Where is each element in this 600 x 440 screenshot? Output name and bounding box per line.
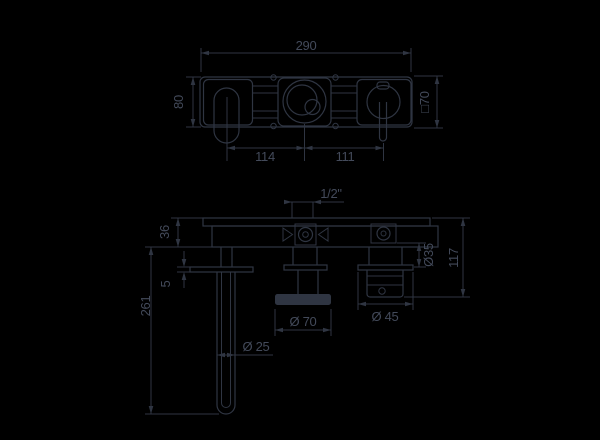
dim-label-mixer-knob-diameter: Ø 70 — [290, 314, 317, 329]
mixer-knob-section — [275, 247, 331, 305]
handle-escutcheon — [358, 265, 413, 270]
dim-mixer-knob-diameter: Ø 70 — [275, 309, 331, 336]
spout-escutcheon — [190, 267, 253, 272]
dim-label-plate-height: 80 — [171, 95, 186, 109]
front-view: 290 80 □70 114 111 — [171, 38, 443, 164]
drawing-canvas: 290 80 □70 114 111 1/2" — [0, 0, 600, 440]
dim-handle-diameter: Ø 45 — [358, 272, 413, 324]
handle-section — [358, 247, 413, 297]
screw-holes — [271, 75, 338, 129]
technical-drawing: 290 80 □70 114 111 1/2" — [0, 0, 600, 440]
dim-label-center-to-handle: 111 — [336, 149, 355, 164]
center-valve-section — [283, 224, 328, 245]
spout-tube-outer — [217, 272, 235, 414]
wall-plate-front — [200, 77, 412, 127]
handle-front — [367, 82, 400, 141]
dim-label-overall-width: 290 — [296, 38, 317, 53]
dim-handle-projection: 117 — [404, 218, 470, 297]
mixer-escutcheon — [284, 265, 327, 270]
left-section — [204, 80, 253, 126]
dim-plate-height: 80 — [171, 77, 201, 127]
handle-lever-pin — [380, 102, 387, 141]
dim-label-plate-depth: 36 — [157, 225, 172, 239]
dim-label-spout-projection: 261 — [138, 296, 153, 317]
dim-inlet-connection: 1/2" — [284, 186, 344, 218]
dim-escutcheon-thickness: 5 — [158, 251, 193, 288]
mixer-knob-disc — [275, 294, 331, 305]
spout-section — [190, 247, 253, 414]
handle-set-screw — [379, 288, 385, 294]
dim-label-inlet-connection: 1/2" — [320, 186, 342, 201]
supply-arrow-right — [319, 228, 329, 241]
supply-arrow-left — [283, 228, 293, 241]
right-valve-section — [371, 224, 396, 243]
dim-label-spout-to-center: 114 — [255, 149, 275, 164]
dim-label-handle-sleeve-diameter: Ø35 — [421, 243, 436, 267]
dim-label-handle-projection: 117 — [446, 248, 461, 268]
section-view: 1/2" 36 — [138, 186, 470, 414]
wall-plate-body — [212, 226, 438, 247]
dim-overall-width: 290 — [201, 38, 411, 72]
plate-groove-lines — [253, 86, 358, 118]
dim-label-square-escutcheon: □70 — [417, 91, 432, 112]
dim-label-spout-tube-diameter: Ø 25 — [243, 339, 270, 354]
dim-label-escutcheon-thickness: 5 — [158, 280, 173, 287]
mixer-knob-front — [283, 80, 326, 123]
dim-spout-tube-diameter: Ø 25 — [217, 339, 273, 357]
dim-label-handle-diameter: Ø 45 — [372, 309, 399, 324]
dim-plate-depth: 36 — [145, 218, 212, 247]
dim-square-escutcheon: □70 — [414, 76, 443, 128]
spout-tube-inner — [222, 272, 231, 408]
